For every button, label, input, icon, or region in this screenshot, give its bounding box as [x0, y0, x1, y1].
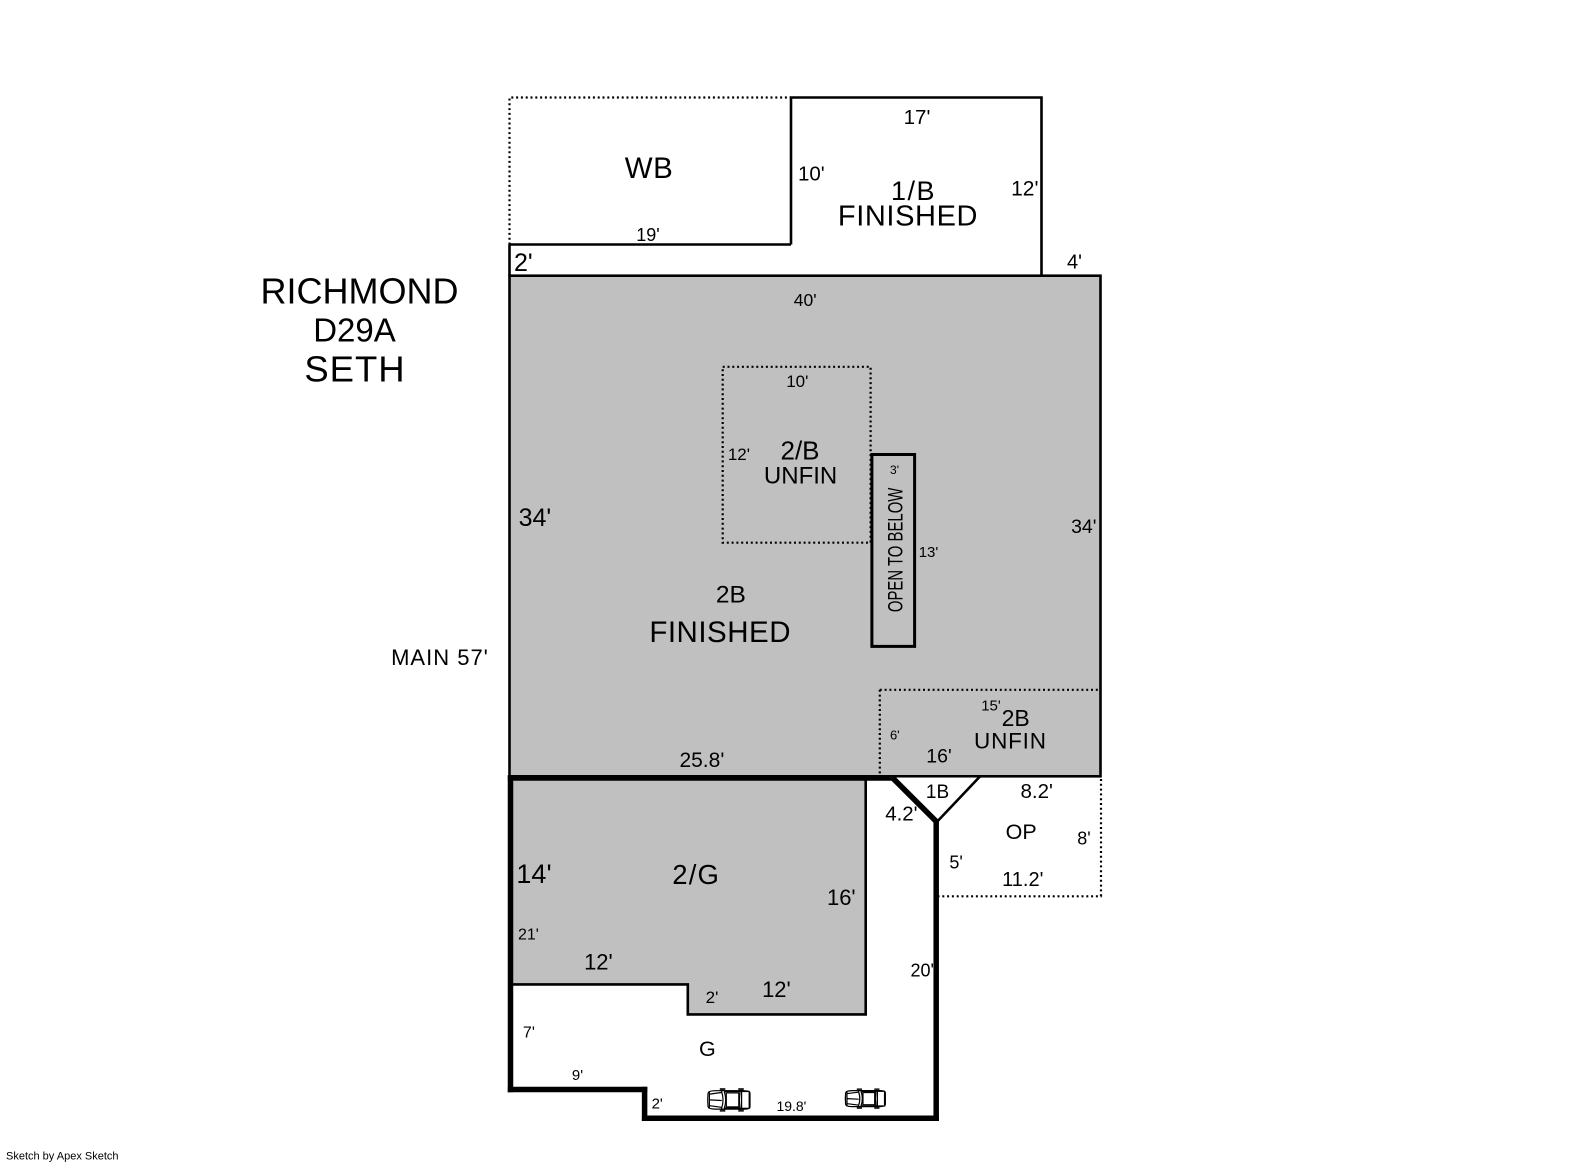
svg-text:12': 12': [762, 977, 791, 1002]
svg-text:FINISHED: FINISHED: [838, 200, 978, 232]
svg-text:RICHMOND: RICHMOND: [261, 270, 459, 311]
svg-text:34': 34': [519, 504, 552, 532]
svg-text:MAIN 57': MAIN 57': [391, 645, 489, 670]
svg-text:2B: 2B: [1002, 705, 1030, 731]
svg-text:34': 34': [1071, 516, 1096, 538]
svg-text:OP: OP: [1006, 820, 1037, 844]
svg-text:21': 21': [518, 927, 539, 944]
svg-text:2/B: 2/B: [780, 436, 819, 466]
svg-text:25.8': 25.8': [679, 749, 724, 772]
svg-text:10': 10': [798, 163, 825, 186]
svg-text:13': 13': [919, 544, 939, 561]
svg-text:UNFIN: UNFIN: [974, 728, 1047, 753]
svg-text:16': 16': [926, 746, 951, 768]
svg-text:19': 19': [636, 225, 659, 245]
svg-text:4': 4': [1067, 252, 1082, 274]
svg-text:16': 16': [827, 885, 856, 910]
svg-text:1B: 1B: [926, 782, 949, 803]
svg-text:12': 12': [728, 445, 750, 464]
svg-text:G: G: [699, 1037, 716, 1061]
svg-text:OPEN TO BELOW: OPEN TO BELOW: [884, 487, 907, 612]
svg-text:12': 12': [584, 949, 613, 974]
svg-text:2B: 2B: [716, 582, 746, 609]
svg-text:Sketch by Apex Sketch: Sketch by Apex Sketch: [6, 1150, 119, 1162]
svg-text:8': 8': [1077, 829, 1090, 849]
svg-text:10': 10': [786, 372, 808, 391]
svg-text:8.2': 8.2': [1020, 780, 1052, 803]
svg-text:5': 5': [949, 852, 962, 872]
svg-text:11.2': 11.2': [1002, 869, 1043, 891]
svg-text:40': 40': [794, 290, 817, 310]
svg-text:4.2': 4.2': [885, 802, 917, 825]
svg-text:17': 17': [904, 106, 931, 129]
svg-text:2': 2': [652, 1096, 663, 1113]
svg-text:3': 3': [890, 463, 899, 477]
svg-text:UNFIN: UNFIN: [764, 462, 837, 489]
svg-text:2': 2': [706, 988, 719, 1007]
svg-text:WB: WB: [625, 152, 674, 185]
svg-text:12': 12': [1011, 178, 1038, 201]
svg-text:14': 14': [516, 859, 551, 889]
svg-text:SETH: SETH: [304, 348, 405, 389]
svg-text:19.8': 19.8': [776, 1098, 806, 1114]
svg-text:9': 9': [572, 1067, 583, 1084]
svg-text:15': 15': [981, 698, 1001, 715]
svg-text:2/G: 2/G: [672, 859, 720, 890]
svg-text:20': 20': [910, 961, 933, 981]
svg-text:D29A: D29A: [313, 312, 396, 349]
svg-text:6': 6': [890, 728, 900, 743]
svg-text:2': 2': [514, 249, 533, 277]
svg-text:7': 7': [523, 1024, 535, 1041]
svg-text:FINISHED: FINISHED: [649, 616, 791, 649]
